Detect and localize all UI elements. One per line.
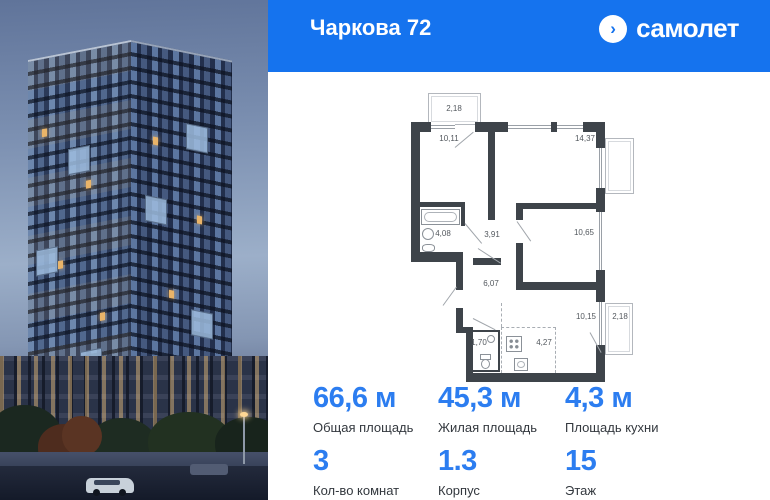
window <box>557 122 583 132</box>
wall-segment <box>488 132 495 220</box>
stat-rooms: 3 Кол-во комнат <box>313 447 399 498</box>
stat-building: 1.3 Корпус <box>438 447 480 498</box>
car-wheel <box>93 489 100 496</box>
kitchen-sink-icon <box>514 358 528 371</box>
room-area-label: 10,11 <box>431 134 467 143</box>
listing-card[interactable]: Чаркова 72 › самолет <box>0 0 770 500</box>
lit-window <box>58 260 63 269</box>
door-swing <box>517 221 532 241</box>
window <box>596 302 605 345</box>
glass-balcony <box>145 195 167 225</box>
lit-window <box>100 312 105 321</box>
wall-segment <box>420 202 465 207</box>
walkway <box>0 452 268 466</box>
glass-balcony <box>186 123 208 153</box>
toilet-icon <box>481 359 490 369</box>
stove-icon <box>506 336 522 352</box>
car <box>190 464 228 475</box>
room-area-label: 1,70 <box>461 338 497 347</box>
glass-balcony <box>68 145 90 175</box>
lit-window <box>42 128 47 137</box>
wall-segment <box>516 203 598 209</box>
stat-value: 3 <box>313 447 399 476</box>
balcony-outline <box>605 138 634 194</box>
kitchen-zone-line <box>501 303 502 327</box>
stat-label: Корпус <box>438 483 480 498</box>
bathtub-icon <box>421 209 460 225</box>
stat-label: Кол-во комнат <box>313 483 399 498</box>
building-photo <box>0 0 268 500</box>
glass-balcony <box>191 309 213 339</box>
stat-value: 15 <box>565 447 596 476</box>
stat-label: Жилая площадь <box>438 420 537 435</box>
balcony-outline <box>605 303 633 355</box>
street-lamp <box>243 416 245 464</box>
stat-floor: 15 Этаж <box>565 447 596 498</box>
lit-window <box>153 136 158 145</box>
wall-segment <box>411 252 463 262</box>
brand-arrow-icon: › <box>599 15 627 43</box>
brand-name: самолет <box>636 13 739 44</box>
stat-value: 1.3 <box>438 447 480 476</box>
stat-kitchen-area: 4,3 м Площадь кухни <box>565 384 658 435</box>
room-area-label: 2,18 <box>436 104 472 113</box>
window <box>596 148 605 188</box>
stat-value: 66,6 м <box>313 384 413 413</box>
room-area-label: 6,07 <box>473 279 509 288</box>
wall-segment <box>516 282 598 290</box>
room-area-label: 10,15 <box>568 312 604 321</box>
window <box>431 122 455 132</box>
room-area-label: 14,37 <box>567 134 603 143</box>
wall-segment <box>411 122 420 262</box>
project-title: Чаркова 72 <box>310 15 431 41</box>
panel-body: 2,18 10,11 14,37 4,08 3,91 10,65 6,07 10… <box>268 72 770 500</box>
floor-plan: 2,18 10,11 14,37 4,08 3,91 10,65 6,07 10… <box>405 88 635 388</box>
stat-value: 45,3 м <box>438 384 537 413</box>
toilet-icon <box>422 244 435 252</box>
stat-total-area: 66,6 м Общая площадь <box>313 384 413 435</box>
door-swing <box>473 318 496 330</box>
door-swing <box>443 287 457 306</box>
wall-segment <box>516 209 523 220</box>
lit-window <box>169 290 174 299</box>
lamp-light <box>240 412 248 417</box>
room-area-label: 4,27 <box>526 338 562 347</box>
lit-window <box>197 215 202 224</box>
stat-label: Этаж <box>565 483 596 498</box>
window <box>508 122 551 132</box>
car <box>86 478 134 493</box>
stat-label: Площадь кухни <box>565 420 658 435</box>
brand-logo: › самолет <box>599 13 739 44</box>
car-wheel <box>119 489 126 496</box>
wall-segment <box>456 262 463 290</box>
room-area-label: 10,65 <box>566 228 602 237</box>
glass-balcony <box>36 246 58 276</box>
stat-living-area: 45,3 м Жилая площадь <box>438 384 537 435</box>
car-window <box>94 480 120 485</box>
window <box>596 212 605 270</box>
wall-segment <box>475 122 508 132</box>
room-area-label: 4,08 <box>425 229 461 238</box>
lit-window <box>86 180 91 189</box>
stat-value: 4,3 м <box>565 384 658 413</box>
info-panel: Чаркова 72 › самолет <box>268 0 770 500</box>
wall-segment <box>516 243 523 282</box>
header-bar: Чаркова 72 › самолет <box>268 0 770 72</box>
room-area-label: 2,18 <box>602 312 638 321</box>
stat-label: Общая площадь <box>313 420 413 435</box>
wall-segment <box>466 373 605 382</box>
tree <box>62 416 102 456</box>
room-area-label: 3,91 <box>474 230 510 239</box>
